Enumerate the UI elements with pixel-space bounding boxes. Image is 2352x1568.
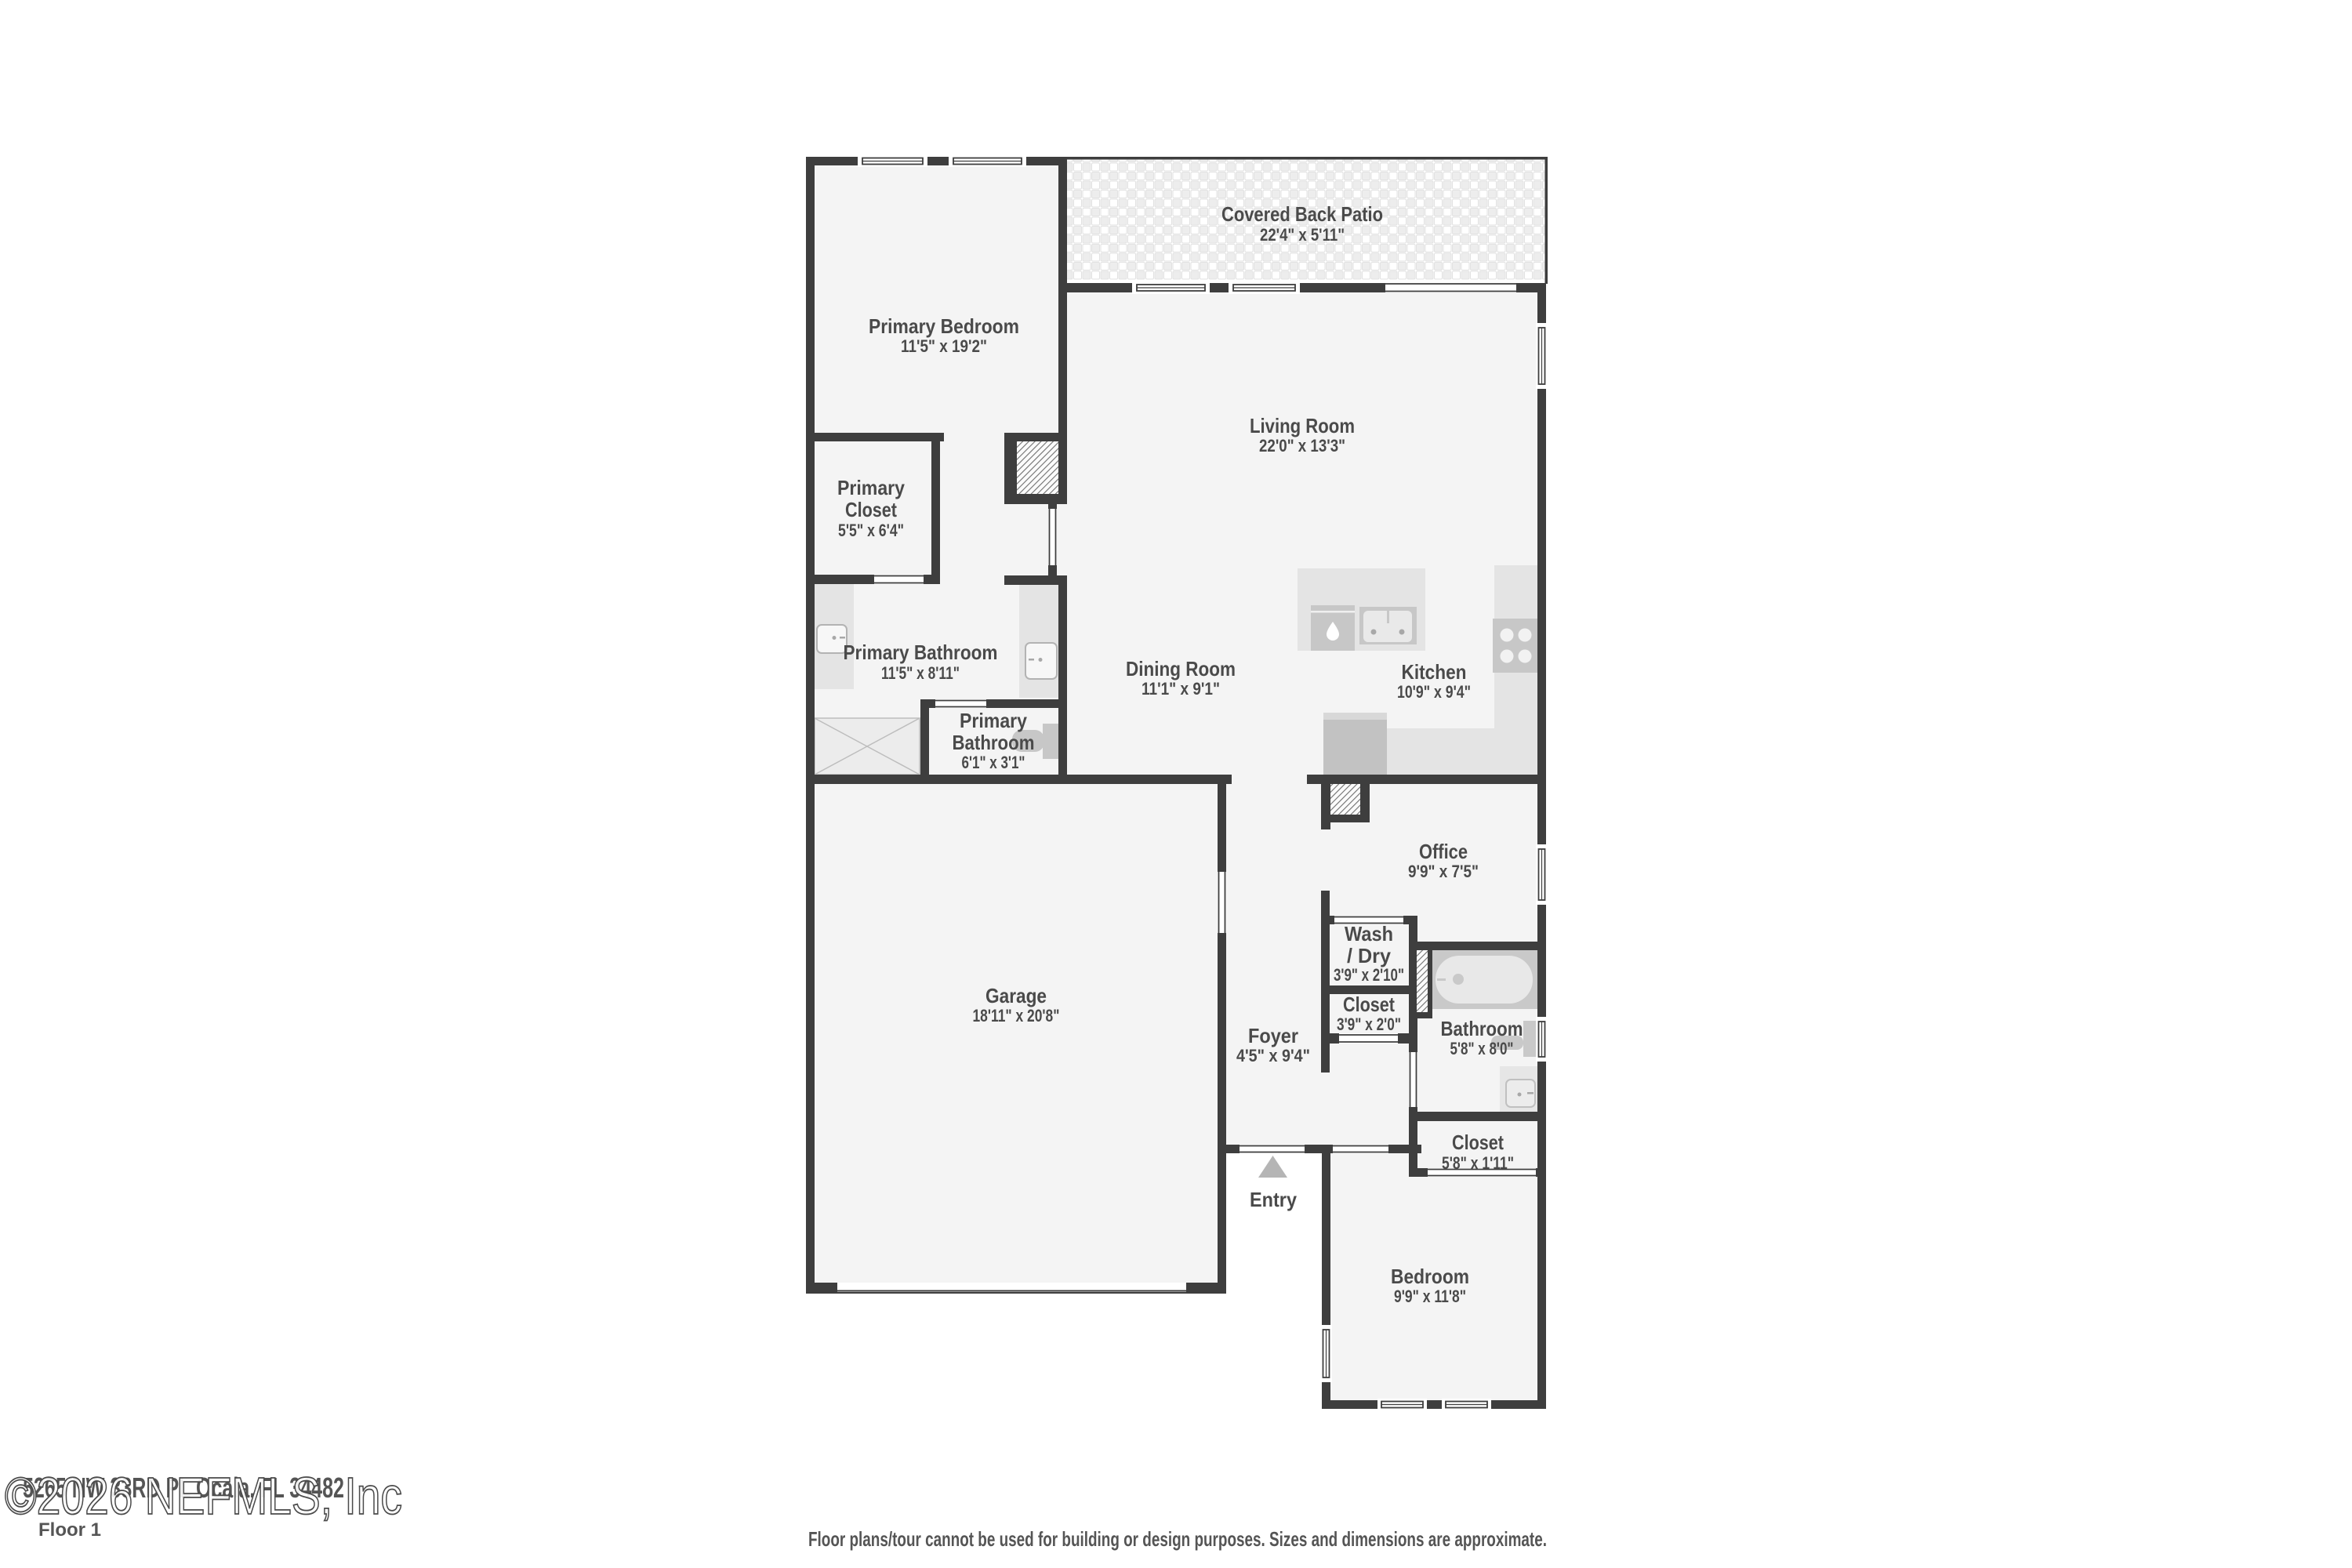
svg-text:10'9" x 9'4": 10'9" x 9'4" bbox=[1397, 682, 1471, 702]
svg-text:Floor plans/tour cannot be use: Floor plans/tour cannot be used for buil… bbox=[808, 1527, 1547, 1551]
svg-text:3'9" x 2'0": 3'9" x 2'0" bbox=[1337, 1014, 1401, 1034]
svg-text:18'11" x 20'8": 18'11" x 20'8" bbox=[973, 1006, 1060, 1025]
svg-text:9'9" x 11'8": 9'9" x 11'8" bbox=[1394, 1287, 1466, 1306]
svg-text:Closet: Closet bbox=[1452, 1131, 1504, 1154]
svg-text:11'5" x 8'11": 11'5" x 8'11" bbox=[881, 663, 960, 683]
svg-text:22'4" x 5'11": 22'4" x 5'11" bbox=[1260, 225, 1345, 245]
svg-text:5'8" x 8'0": 5'8" x 8'0" bbox=[1450, 1039, 1514, 1058]
svg-text:6'1" x 3'1": 6'1" x 3'1" bbox=[962, 753, 1025, 772]
svg-text:9'9" x 7'5": 9'9" x 7'5" bbox=[1408, 862, 1479, 881]
svg-text:©2026 NEFMLS, Inc: ©2026 NEFMLS, Inc bbox=[5, 1467, 402, 1526]
svg-text:5'8" x 1'11": 5'8" x 1'11" bbox=[1442, 1153, 1514, 1173]
svg-text:4'5" x 9'4": 4'5" x 9'4" bbox=[1236, 1046, 1310, 1065]
svg-text:11'1" x 9'1": 11'1" x 9'1" bbox=[1142, 679, 1220, 699]
svg-text:Closet: Closet bbox=[845, 498, 897, 521]
svg-text:Foyer: Foyer bbox=[1248, 1024, 1298, 1047]
svg-text:Floor 1: Floor 1 bbox=[38, 1519, 101, 1541]
svg-text:Primary Bathroom: Primary Bathroom bbox=[844, 641, 998, 664]
svg-text:Living Room: Living Room bbox=[1250, 414, 1355, 437]
svg-text:Primary: Primary bbox=[960, 709, 1027, 732]
svg-text:Dining Room: Dining Room bbox=[1126, 657, 1236, 681]
svg-text:11'5" x 19'2": 11'5" x 19'2" bbox=[901, 336, 987, 356]
svg-text:Closet: Closet bbox=[1343, 993, 1395, 1016]
svg-text:Garage: Garage bbox=[985, 984, 1047, 1007]
svg-text:Office: Office bbox=[1419, 840, 1468, 863]
svg-text:Bedroom: Bedroom bbox=[1391, 1265, 1469, 1288]
svg-text:Bathroom: Bathroom bbox=[1441, 1017, 1523, 1040]
svg-text:Primary: Primary bbox=[837, 476, 905, 499]
svg-text:22'0" x 13'3": 22'0" x 13'3" bbox=[1259, 436, 1345, 456]
svg-text:5'5" x 6'4": 5'5" x 6'4" bbox=[838, 521, 904, 540]
svg-text:/ Dry: / Dry bbox=[1347, 944, 1392, 967]
svg-text:Covered Back Patio: Covered Back Patio bbox=[1221, 202, 1383, 226]
svg-text:Entry: Entry bbox=[1250, 1188, 1297, 1211]
svg-text:Wash: Wash bbox=[1345, 922, 1393, 946]
svg-text:Bathroom: Bathroom bbox=[953, 731, 1035, 754]
svg-text:Kitchen: Kitchen bbox=[1402, 660, 1467, 684]
svg-text:Primary Bedroom: Primary Bedroom bbox=[869, 314, 1019, 338]
svg-text:3'9" x 2'10": 3'9" x 2'10" bbox=[1334, 965, 1404, 985]
